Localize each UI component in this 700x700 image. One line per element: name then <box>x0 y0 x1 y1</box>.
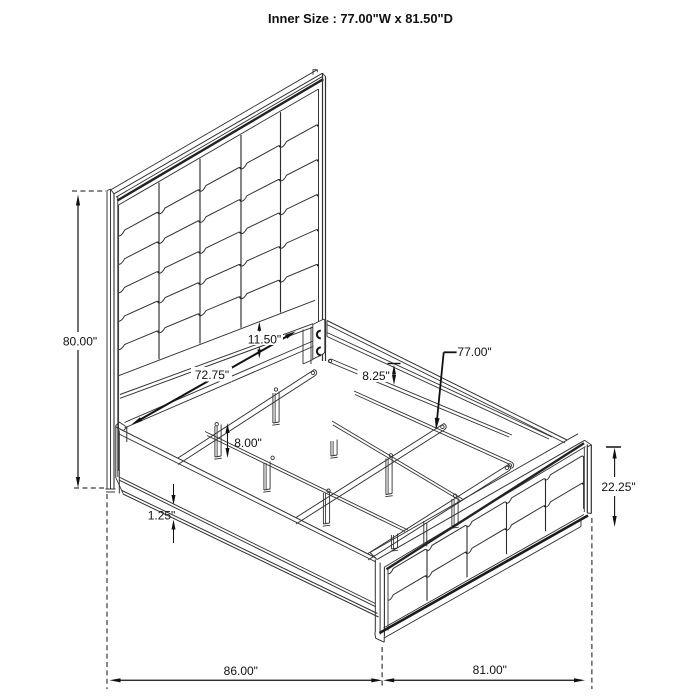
svg-text:72.75": 72.75" <box>195 368 229 382</box>
svg-text:77.00": 77.00" <box>457 345 491 359</box>
svg-text:8.00": 8.00" <box>234 436 262 450</box>
svg-text:1.25": 1.25" <box>148 509 176 523</box>
svg-text:86.00": 86.00" <box>224 664 258 678</box>
svg-text:Inner Size : 77.00"W x 81.50"D: Inner Size : 77.00"W x 81.50"D <box>268 11 453 26</box>
svg-text:8.25": 8.25" <box>362 369 390 383</box>
svg-text:11.50": 11.50" <box>248 333 281 347</box>
svg-text:81.00": 81.00" <box>473 663 507 677</box>
svg-text:80.00": 80.00" <box>63 335 97 349</box>
svg-text:22.25": 22.25" <box>601 480 635 494</box>
